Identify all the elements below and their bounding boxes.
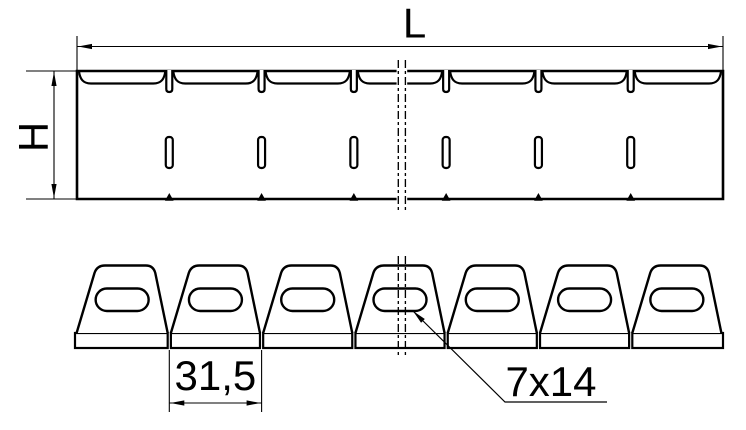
- arrow-left-icon: [170, 400, 184, 405]
- arrow-right-icon: [708, 44, 722, 49]
- tab-hole: [281, 289, 334, 312]
- tab-hole: [189, 289, 242, 312]
- tab-hole: [466, 289, 519, 312]
- height-dimension: H: [10, 71, 77, 199]
- mid-slot: [627, 137, 634, 168]
- height-label: H: [10, 122, 57, 152]
- arrow-down-icon: [51, 184, 56, 198]
- arrow-left-icon: [78, 44, 92, 49]
- tab-hole: [96, 289, 149, 312]
- pitch-dimension: 31,5: [169, 350, 261, 412]
- mid-slot: [535, 137, 542, 168]
- edge-slot: [535, 70, 541, 92]
- base-segment: [540, 333, 629, 348]
- hole-size-value: 7x14: [505, 358, 596, 405]
- base-segment: [448, 333, 537, 348]
- base-segment: [171, 333, 260, 348]
- edge-slot: [259, 70, 265, 92]
- length-label: L: [403, 0, 426, 47]
- mid-slot: [166, 137, 173, 168]
- base-segment: [75, 333, 168, 348]
- strip-side-view: [77, 62, 723, 208]
- strip-tab-view: [75, 266, 723, 349]
- tab-hole: [650, 289, 703, 312]
- tab-hole: [374, 289, 427, 312]
- pitch-value: 31,5: [175, 352, 257, 399]
- mid-slot: [443, 137, 450, 168]
- arrow-up-icon: [51, 72, 56, 86]
- technical-drawing: L H 31,5 7x14: [0, 0, 746, 430]
- edge-slot: [443, 70, 449, 92]
- arrow-right-icon: [247, 400, 261, 405]
- base-segment: [632, 333, 723, 348]
- drawing-canvas: L H 31,5 7x14: [0, 0, 746, 430]
- base-segment: [263, 333, 352, 348]
- mid-slot: [258, 137, 265, 168]
- edge-slot: [351, 70, 357, 92]
- length-dimension: L: [77, 0, 723, 71]
- edge-slot: [628, 70, 634, 92]
- base-segment: [355, 333, 444, 348]
- mid-slot: [350, 137, 357, 168]
- tab-hole: [558, 289, 611, 312]
- edge-slot: [166, 70, 172, 92]
